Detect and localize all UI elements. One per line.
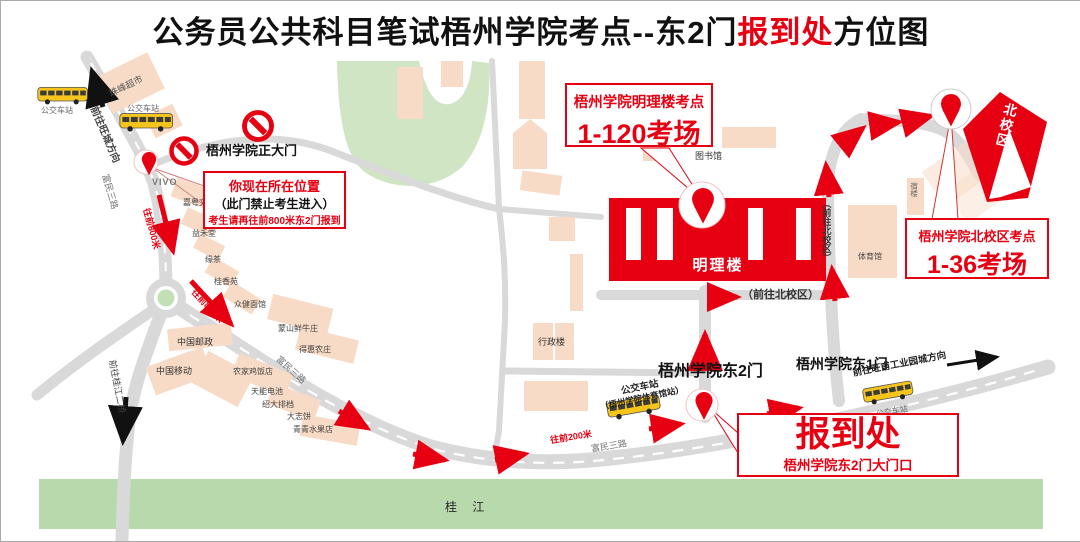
checkin-callout: 报到处 梧州学院东2门大门口 <box>737 413 959 477</box>
china-mobile-label: 中国移动 <box>156 366 192 376</box>
wangfu-arrow <box>947 357 997 365</box>
route-arrow <box>832 269 835 301</box>
building-gym <box>848 205 897 278</box>
roundabout <box>146 278 186 318</box>
shop-label: 天能电池 <box>251 387 283 396</box>
building <box>513 119 547 169</box>
roundabout-green <box>158 290 175 307</box>
china-post-label: 中国邮政 <box>177 337 213 347</box>
building <box>549 217 575 241</box>
current-location-line3: 考生请再往前800米东2门报到 <box>207 212 342 227</box>
title-prefix: 公务员公共科目笔试梧州学院考点--东2门 <box>153 15 738 50</box>
buildings-layer <box>95 52 1004 446</box>
building <box>223 281 261 314</box>
shop-label: 蒙山鲜牛庄 <box>278 324 318 333</box>
shop-label: 益禾堂 <box>192 229 216 238</box>
gym-label: 体育馆 <box>858 252 882 261</box>
mingli-callout: 梧州学院明理楼考点 1-120考场 <box>565 83 713 147</box>
north-callout: 梧州学院北校区考点 1-36考场 <box>905 218 1049 279</box>
building <box>520 170 562 195</box>
title-suffix: 方位图 <box>833 15 929 50</box>
river-label: 桂 江 <box>445 501 490 515</box>
route-arrow <box>649 424 681 429</box>
vivo-label: VIVO <box>152 177 178 187</box>
guijiang-river <box>39 479 1043 529</box>
bus-stop-label: 公交车站 <box>127 104 159 113</box>
bus-icon <box>38 87 88 104</box>
shop-label: 得惠农庄 <box>299 345 331 354</box>
current-location-callout: 你现在所在位置 （此门禁止考生进入） 考生请再往前800米东2门报到 <box>203 171 346 229</box>
mingli-building-label: 明理楼 <box>673 257 763 274</box>
title-highlight: 报到处 <box>737 15 833 50</box>
mingli-slot <box>626 208 641 260</box>
north-callout-line2: 1-36考场 <box>909 245 1045 281</box>
campus-path-h1 <box>499 209 601 217</box>
shop-label: 农家鸡饭店 <box>233 367 273 376</box>
north-callout-line1: 梧州学院北校区考点 <box>909 226 1045 245</box>
shop-label: 桂香苑 <box>214 277 238 286</box>
shop-label: 众健面馆 <box>234 300 266 309</box>
library-label: 图书馆 <box>695 151 722 161</box>
main-gate-label: 梧州学院正大门 <box>206 144 297 159</box>
building <box>441 61 463 87</box>
mingli-slot <box>657 208 673 260</box>
current-location-line1: 你现在所在位置 <box>207 176 342 195</box>
page-title: 公务员公共科目笔试梧州学院考点--东2门报到处方位图 <box>1 7 1080 52</box>
building <box>519 61 545 119</box>
checkin-callout-line2: 梧州学院东2门大门口 <box>741 454 955 474</box>
mingli-callout-line1: 梧州学院明理楼考点 <box>569 91 709 112</box>
no-entry-icon <box>172 139 197 164</box>
building <box>570 254 583 311</box>
route-arrow <box>877 122 899 125</box>
shop-label: 大志饼 <box>287 412 311 421</box>
route-arrow <box>826 165 829 197</box>
mingli-slot <box>796 208 811 260</box>
building <box>397 67 423 119</box>
current-location-line2: （此门禁止考生进入） <box>207 195 342 212</box>
map-canvas: 公务员公共科目笔试梧州学院考点--东2门报到处方位图 <box>0 0 1080 542</box>
checkin-callout-line1: 报到处 <box>741 417 955 454</box>
building <box>524 381 588 411</box>
to-north-campus-side-label: （前往北校区） <box>821 199 831 262</box>
shop-label: 青青水果店 <box>293 425 333 434</box>
to-north-campus-bottom-label: （前往北校区） <box>742 289 819 302</box>
mingli-callout-line2: 1-120考场 <box>569 112 709 151</box>
dorm-label: 宿楼 <box>909 182 918 197</box>
building-library <box>722 127 776 148</box>
shop-label: 绍大排档 <box>262 400 294 409</box>
bus-stop-label: 公交车站 <box>41 106 73 115</box>
campus-path-vertical <box>492 61 505 453</box>
no-entry-icon <box>245 113 272 140</box>
admin-building-label: 行政楼 <box>538 337 565 347</box>
mingli-slot <box>748 208 763 260</box>
shop-label: 缘茶 <box>205 255 221 264</box>
